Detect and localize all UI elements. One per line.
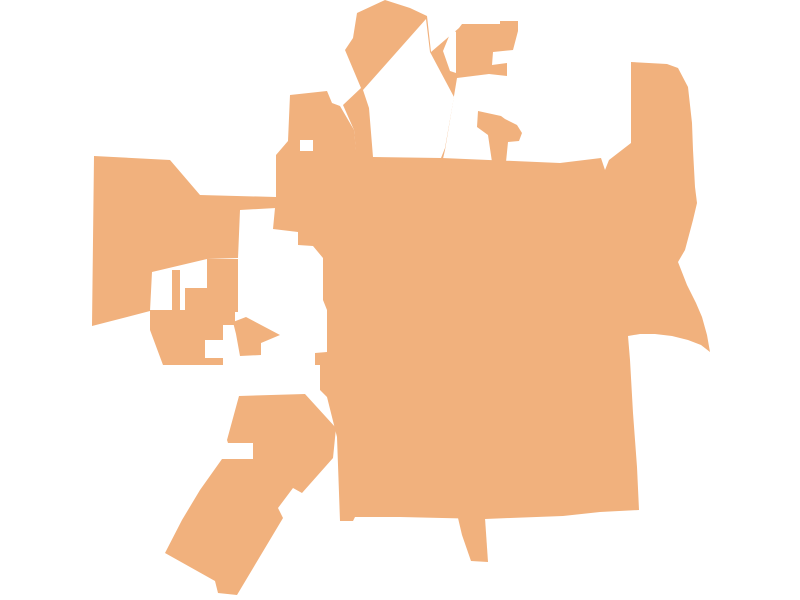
south-tail[interactable] bbox=[458, 518, 488, 562]
flag-piece[interactable] bbox=[477, 111, 522, 162]
map-stage bbox=[0, 0, 800, 600]
west-column-b[interactable] bbox=[185, 288, 207, 312]
west-column-c[interactable] bbox=[207, 259, 238, 312]
municipality-boundary-map bbox=[0, 0, 800, 600]
southwest-lobe[interactable] bbox=[165, 394, 336, 595]
arrow-triangle-piece[interactable] bbox=[233, 317, 280, 356]
west-lobe[interactable] bbox=[92, 156, 276, 326]
west-column-a[interactable] bbox=[172, 270, 180, 312]
southwest-chunk[interactable] bbox=[150, 310, 235, 365]
northwest-notch-hole bbox=[300, 140, 313, 151]
